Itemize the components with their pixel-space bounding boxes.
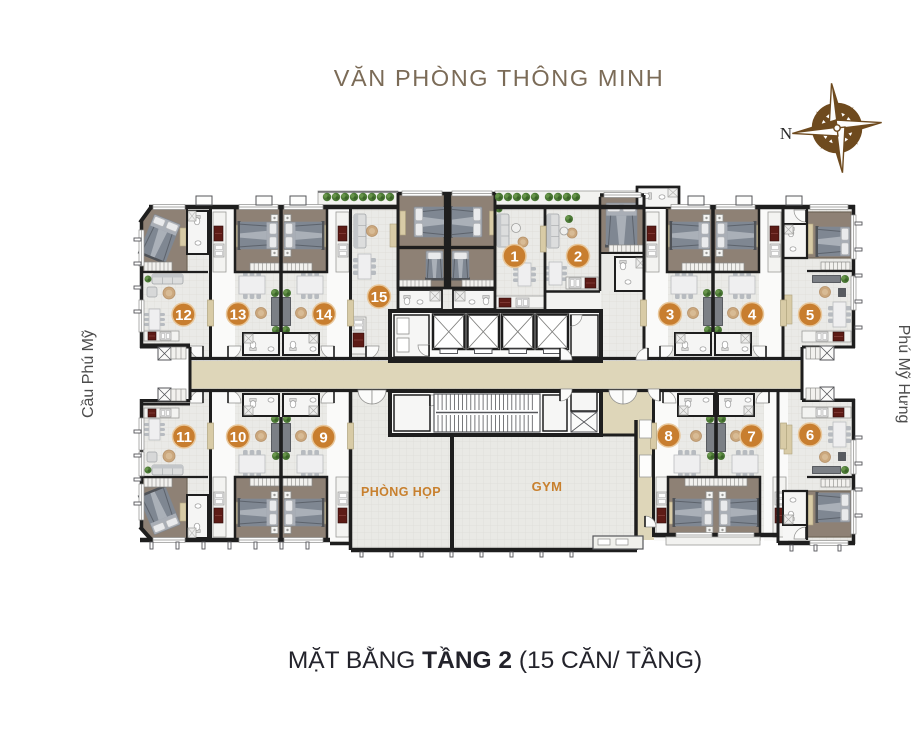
svg-text:Cầu Phú Mỹ: Cầu Phú Mỹ: [80, 330, 97, 418]
svg-text:VĂN PHÒNG THÔNG MINH: VĂN PHÒNG THÔNG MINH: [334, 64, 665, 91]
svg-text:6: 6: [806, 427, 814, 444]
svg-text:10: 10: [230, 429, 247, 446]
svg-text:N: N: [780, 124, 792, 143]
svg-text:MẶT BẰNG TẦNG 2 (15 CĂN/ TẦNG): MẶT BẰNG TẦNG 2 (15 CĂN/ TẦNG): [288, 646, 702, 674]
svg-text:5: 5: [806, 307, 814, 324]
svg-text:Phú Mỹ Hưng: Phú Mỹ Hưng: [895, 325, 912, 424]
svg-text:9: 9: [319, 430, 327, 447]
svg-text:13: 13: [230, 307, 247, 324]
svg-text:PHÒNG HỌP: PHÒNG HỌP: [361, 484, 441, 499]
svg-text:4: 4: [748, 307, 757, 324]
svg-text:12: 12: [175, 307, 192, 324]
svg-text:3: 3: [666, 307, 674, 324]
svg-text:7: 7: [747, 429, 755, 446]
svg-text:2: 2: [574, 249, 582, 266]
svg-text:8: 8: [664, 428, 672, 445]
svg-text:11: 11: [176, 429, 192, 446]
svg-text:15: 15: [371, 289, 388, 306]
svg-text:14: 14: [316, 307, 333, 324]
svg-text:1: 1: [510, 249, 518, 266]
svg-text:GYM: GYM: [532, 479, 563, 494]
